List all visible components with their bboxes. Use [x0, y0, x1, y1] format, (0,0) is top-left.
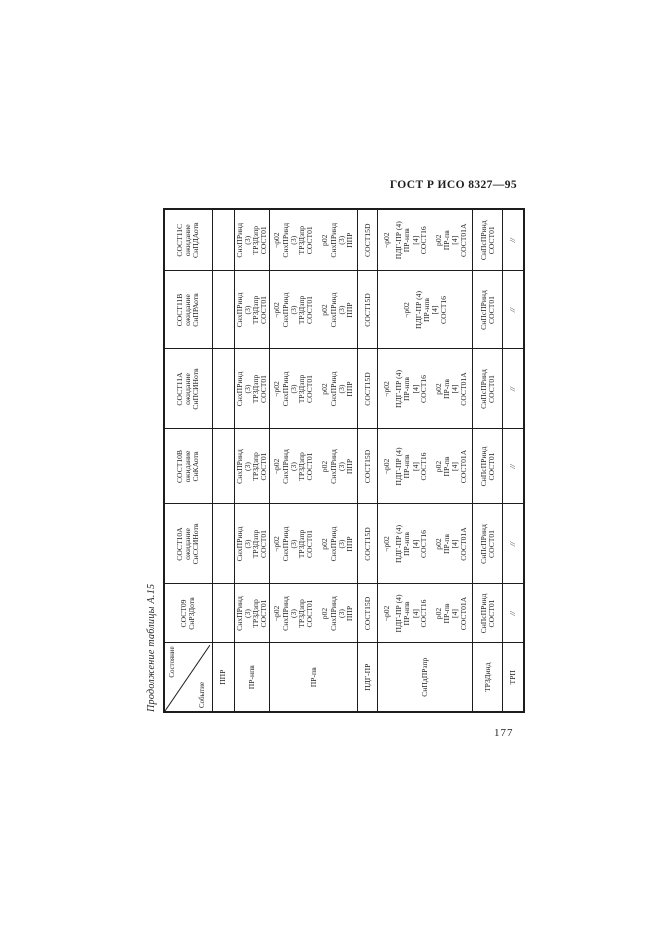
cell-entry-block: СОСТ15D: [364, 351, 372, 428]
state-header-cell: СОСТ11СожиданиеСнПДАотв: [164, 209, 212, 271]
cell-entry-line: СОСТ01А: [460, 506, 468, 583]
rotated-table-container: Продолжение таблицы А.15 СостояниеСобыти…: [141, 210, 521, 713]
cell-entry-block: СнхПРинд(3)ТРЗДзпрСОСТ01: [236, 586, 269, 642]
corner-state-label: Состояние: [169, 647, 177, 678]
cell-entry-block: ПДГ-ПР (4)ПР-нпв[4]СОСТ16: [395, 586, 428, 642]
cell-entry-block: ¬р02: [383, 351, 391, 428]
state-header-line: СнРЗДотв: [188, 586, 196, 642]
cell-entry-line: ¬р02: [383, 351, 391, 428]
cell-entry-line: СОСТ01: [306, 273, 314, 348]
cell-entry-block: ¬р02СнхПРинд(3)ТРЗДзпрСОСТ01: [273, 273, 314, 348]
cell-entry-line: СОСТ01: [306, 351, 314, 428]
table-cell: //: [503, 584, 524, 643]
table-cell: СОСТ15D: [358, 349, 378, 429]
table-cell: ¬р02СнхПРинд(3)ТРЗДзпрСОСТ01р02СнхПРинд(…: [270, 504, 358, 584]
cell-entry-block: СОСТ15D: [364, 506, 372, 583]
table-cell: СнхПРинд(3)ТРЗДзпрСОСТ01: [234, 584, 270, 643]
table-cell: [212, 209, 234, 271]
cell-entry-line: ¬р02: [383, 431, 391, 503]
table-cell: //: [503, 209, 524, 271]
cell-entry-block: ПДГ-ПР (4)ПР-нпв[4]СОСТ16: [395, 211, 428, 270]
event-label-cell: ТРЗДинд: [473, 643, 503, 712]
table-cell: //: [503, 504, 524, 584]
cell-entry-block: р02ПР-пв[4]СОСТ01А: [435, 506, 468, 583]
cell-entry-block: ¬р02: [403, 273, 411, 348]
cell-entry-line: СОСТ15D: [364, 211, 372, 270]
cell-entry-block: СнхПРинд(3)ТРЗДзпрСОСТ01: [236, 506, 269, 583]
cell-entry-line: СОСТ01: [488, 273, 496, 348]
cell-entry-block: ПДГ-ПР (4)ПР-нпв[4]СОСТ16: [415, 273, 448, 348]
cell-entry-line: СОСТ01: [260, 211, 268, 270]
rotated-table-inner: Продолжение таблицы А.15 СостояниеСобыти…: [141, 210, 521, 713]
cell-entry-line: СОСТ15D: [364, 431, 372, 503]
cell-entry-line: ППР: [346, 273, 354, 348]
table-cell: СнхПРинд(3)ТРЗДзпрСОСТ01: [234, 209, 270, 271]
cell-entry-block: СнхПРинд(3)ТРЗДзпрСОСТ01: [236, 431, 269, 503]
table-cell: СнхПРинд(3)ТРЗДзпрСОСТ01: [234, 271, 270, 349]
cell-entry-line: //: [509, 211, 517, 270]
table-cell: СОСТ15D: [358, 271, 378, 349]
cell-entry-line: //: [509, 506, 517, 583]
cell-entry-block: ¬р02СнхПРинд(3)ТРЗДзпрСОСТ01: [273, 506, 314, 583]
cell-entry-block: СнхПРинд(3)ТРЗДзпрСОСТ01: [236, 273, 269, 348]
state-header-line: СнКАотв: [192, 431, 200, 503]
cell-entry-line: СОСТ16: [440, 273, 448, 348]
cell-entry-block: СнПсПРиндСОСТ01: [480, 586, 496, 642]
cell-entry-block: р02СнхПРинд(3)ППР: [321, 273, 354, 348]
table-cell: СнхПРинд(3)ТРЗДзпрСОСТ01: [234, 504, 270, 584]
table-cell: [212, 429, 234, 504]
table-cell: СнПсПРиндСОСТ01: [473, 349, 503, 429]
table-cell: СнхПРинд(3)ТРЗДзпрСОСТ01: [234, 429, 270, 504]
event-label-cell: ТРП: [503, 643, 524, 712]
event-label-cell: ПР-пв: [270, 643, 358, 712]
cell-entry-line: ППР: [346, 351, 354, 428]
cell-entry-block: р02СнхПРинд(3)ППР: [321, 431, 354, 503]
cell-entry-block: р02СнхПРинд(3)ППР: [321, 506, 354, 583]
table-cell: СнПсПРиндСОСТ01: [473, 504, 503, 584]
cell-entry-line: ¬р02: [383, 586, 391, 642]
cell-entry-block: //: [509, 431, 517, 503]
table-cell: СнПсПРиндСОСТ01: [473, 271, 503, 349]
table-cell: ¬р02СнхПРинд(3)ТРЗДзпрСОСТ01р02СнхПРинд(…: [270, 429, 358, 504]
cell-entry-block: СОСТ15D: [364, 586, 372, 642]
table-cell: ¬р02ПДГ-ПР (4)ПР-нпв[4]СОСТ16р02ПР-пв[4]…: [378, 209, 473, 271]
cell-entry-line: СОСТ15D: [364, 273, 372, 348]
table-cell: //: [503, 271, 524, 349]
table-cell: //: [503, 349, 524, 429]
cell-entry-block: ¬р02СнхПРинд(3)ТРЗДзпрСОСТ01: [273, 351, 314, 428]
cell-entry-line: СОСТ16: [420, 211, 428, 270]
cell-entry-block: р02СнхПРинд(3)ППР: [321, 211, 354, 270]
table-cell: ¬р02ПДГ-ПР (4)ПР-нпв[4]СОСТ16: [378, 271, 473, 349]
table-cell: [212, 584, 234, 643]
cell-entry-line: СОСТ01: [306, 211, 314, 270]
table-cell: СнПсПРиндСОСТ01: [473, 209, 503, 271]
cell-entry-block: р02ПР-пв[4]СОСТ01А: [435, 351, 468, 428]
cell-entry-block: СнПсПРиндСОСТ01: [480, 506, 496, 583]
state-header-cell: СОСТ11АожиданиеСнПСИНотв: [164, 349, 212, 429]
cell-entry-block: р02СнхПРинд(3)ППР: [321, 351, 354, 428]
table-cell: СнПсПРиндСОСТ01: [473, 584, 503, 643]
cell-entry-line: СОСТ16: [420, 586, 428, 642]
table-cell: //: [503, 429, 524, 504]
cell-entry-line: СОСТ01: [260, 273, 268, 348]
cell-entry-line: СОСТ01: [306, 506, 314, 583]
cell-entry-line: ППР: [346, 211, 354, 270]
state-header-line: СнПРАотв: [192, 273, 200, 348]
state-header-cell: СОСТ09СнРЗДотв: [164, 584, 212, 643]
cell-entry-line: СОСТ01: [260, 586, 268, 642]
cell-entry-line: //: [509, 351, 517, 428]
document-standard-header: ГОСТ Р ИСО 8327—95: [390, 179, 517, 191]
cell-entry-line: СОСТ01: [488, 586, 496, 642]
cell-entry-block: //: [509, 211, 517, 270]
cell-entry-line: СОСТ01: [306, 586, 314, 642]
cell-entry-line: ¬р02: [383, 211, 391, 270]
cell-entry-block: ¬р02СнхПРинд(3)ТРЗДзпрСОСТ01: [273, 211, 314, 270]
cell-entry-block: СОСТ15D: [364, 273, 372, 348]
table-cell: [212, 271, 234, 349]
table-cell: СОСТ15D: [358, 504, 378, 584]
state-header-line: СнПСИНотв: [192, 351, 200, 428]
cell-entry-block: ¬р02: [383, 211, 391, 270]
table-cell: ¬р02ПДГ-ПР (4)ПР-нпв[4]СОСТ16р02ПР-пв[4]…: [378, 429, 473, 504]
cell-entry-line: СОСТ01: [488, 211, 496, 270]
page-number: 177: [494, 727, 514, 739]
state-header-line: СнПДАотв: [192, 211, 200, 270]
cell-entry-block: ¬р02СнхПРинд(3)ТРЗДзпрСОСТ01: [273, 431, 314, 503]
cell-entry-block: ПДГ-ПР (4)ПР-нпв[4]СОСТ16: [395, 506, 428, 583]
cell-entry-line: СОСТ01: [488, 351, 496, 428]
cell-entry-line: СОСТ01А: [460, 586, 468, 642]
scanned-document-page: ГОСТ Р ИСО 8327—95 Продолжение таблицы А…: [0, 0, 661, 935]
cell-entry-block: СнПсПРиндСОСТ01: [480, 431, 496, 503]
cell-entry-block: ПДГ-ПР (4)ПР-нпв[4]СОСТ16: [395, 431, 428, 503]
cell-entry-block: //: [509, 273, 517, 348]
cell-entry-block: ¬р02СнхПРинд(3)ТРЗДзпрСОСТ01: [273, 586, 314, 642]
table-cell: СОСТ15D: [358, 429, 378, 504]
cell-entry-line: СОСТ01А: [460, 211, 468, 270]
cell-entry-line: СОСТ01: [260, 506, 268, 583]
cell-entry-line: СОСТ01: [306, 431, 314, 503]
cell-entry-line: //: [509, 586, 517, 642]
cell-entry-line: СОСТ15D: [364, 506, 372, 583]
event-label-cell: ПДГ-ПР: [358, 643, 378, 712]
cell-entry-block: СнхПРинд(3)ТРЗДзпрСОСТ01: [236, 351, 269, 428]
cell-entry-line: СОСТ15D: [364, 586, 372, 642]
cell-entry-line: СОСТ01: [488, 506, 496, 583]
table-cell: ¬р02СнхПРинд(3)ТРЗДзпрСОСТ01р02СнхПРинд(…: [270, 349, 358, 429]
cell-entry-line: //: [509, 273, 517, 348]
cell-entry-block: ¬р02: [383, 586, 391, 642]
cell-entry-block: р02ПР-пв[4]СОСТ01А: [435, 431, 468, 503]
table-cell: СнПсПРиндСОСТ01: [473, 429, 503, 504]
state-header-cell: СОСТ11ВожиданиеСнПРАотв: [164, 271, 212, 349]
table-caption: Продолжение таблицы А.15: [141, 210, 163, 713]
table-cell: ¬р02СнхПРинд(3)ТРЗДзпрСОСТ01р02СнхПРинд(…: [270, 271, 358, 349]
table-cell: СнхПРинд(3)ТРЗДзпрСОСТ01: [234, 349, 270, 429]
cell-entry-line: ППР: [346, 506, 354, 583]
cell-entry-line: СОСТ01А: [460, 431, 468, 503]
state-header-line: СнССИНотв: [192, 506, 200, 583]
state-table-mount: СостояниеСобытиеСОСТ09СнРЗДотвСОСТ10Аожи…: [163, 210, 525, 713]
cell-entry-block: СнПсПРиндСОСТ01: [480, 351, 496, 428]
cell-entry-block: СОСТ15D: [364, 211, 372, 270]
corner-event-label: Событие: [199, 682, 207, 708]
cell-entry-line: ППР: [346, 586, 354, 642]
cell-entry-line: СОСТ01А: [460, 351, 468, 428]
cell-entry-block: р02ПР-пв[4]СОСТ01А: [435, 586, 468, 642]
table-cell: ¬р02ПДГ-ПР (4)ПР-нпв[4]СОСТ16р02ПР-пв[4]…: [378, 504, 473, 584]
cell-entry-line: СОСТ16: [420, 351, 428, 428]
cell-entry-line: ППР: [346, 431, 354, 503]
cell-entry-block: //: [509, 506, 517, 583]
cell-entry-block: ¬р02: [383, 431, 391, 503]
table-cell: СОСТ15D: [358, 584, 378, 643]
cell-entry-block: р02ПР-пв[4]СОСТ01А: [435, 211, 468, 270]
cell-entry-line: ¬р02: [383, 506, 391, 583]
cell-entry-block: СнПсПРиндСОСТ01: [480, 211, 496, 270]
table-cell: СОСТ15D: [358, 209, 378, 271]
corner-cell: СостояниеСобытие: [164, 643, 212, 712]
cell-entry-block: СнПсПРиндСОСТ01: [480, 273, 496, 348]
cell-entry-line: СОСТ01: [260, 431, 268, 503]
cell-entry-line: СОСТ15D: [364, 351, 372, 428]
cell-entry-block: р02СнхПРинд(3)ППР: [321, 586, 354, 642]
state-header-cell: СОСТ10ВожиданиеСнКАотв: [164, 429, 212, 504]
table-cell: ¬р02СнхПРинд(3)ТРЗДзпрСОСТ01р02СнхПРинд(…: [270, 209, 358, 271]
state-header-cell: СОСТ10АожиданиеСнССИНотв: [164, 504, 212, 584]
table-cell: [212, 349, 234, 429]
cell-entry-block: СОСТ15D: [364, 431, 372, 503]
cell-entry-line: СОСТ01: [488, 431, 496, 503]
table-cell: ¬р02ПДГ-ПР (4)ПР-нпв[4]СОСТ16р02ПР-пв[4]…: [378, 584, 473, 643]
event-label-cell: СнПдПРзпр: [378, 643, 473, 712]
table-cell: ¬р02ПДГ-ПР (4)ПР-нпв[4]СОСТ16р02ПР-пв[4]…: [378, 349, 473, 429]
cell-entry-line: //: [509, 431, 517, 503]
cell-entry-line: СОСТ01: [260, 351, 268, 428]
cell-entry-line: СОСТ16: [420, 506, 428, 583]
table-cell: ¬р02СнхПРинд(3)ТРЗДзпрСОСТ01р02СнхПРинд(…: [270, 584, 358, 643]
cell-entry-block: СнхПРинд(3)ТРЗДзпрСОСТ01: [236, 211, 269, 270]
table-cell: [212, 504, 234, 584]
cell-entry-block: //: [509, 586, 517, 642]
cell-entry-block: ¬р02: [383, 506, 391, 583]
event-label-cell: ППР: [212, 643, 234, 712]
cell-entry-block: //: [509, 351, 517, 428]
cell-entry-block: ПДГ-ПР (4)ПР-нпв[4]СОСТ16: [395, 351, 428, 428]
state-table: СостояниеСобытиеСОСТ09СнРЗДотвСОСТ10Аожи…: [163, 208, 525, 713]
cell-entry-line: СОСТ16: [420, 431, 428, 503]
event-label-cell: ПР-нпв: [234, 643, 270, 712]
cell-entry-line: ¬р02: [403, 273, 411, 348]
